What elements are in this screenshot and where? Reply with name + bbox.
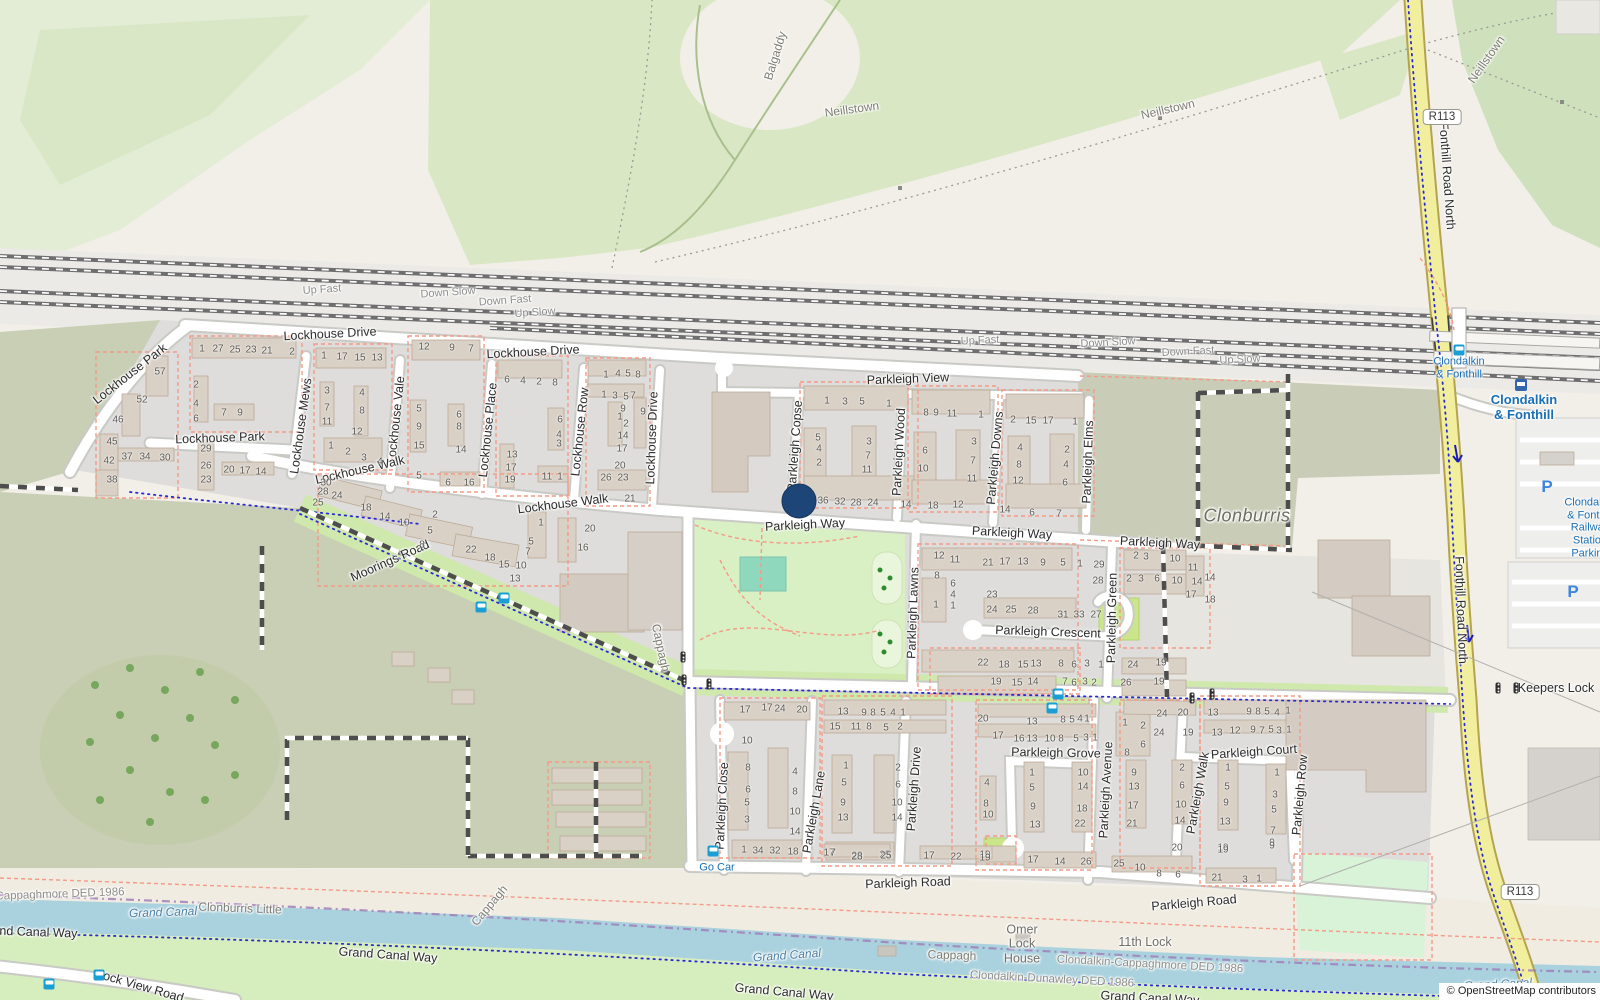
map-marker[interactable] <box>782 484 817 519</box>
map-canvas[interactable]: Lockhouse ParkLockhouse DriveLockhouse D… <box>0 0 1600 1000</box>
attribution[interactable]: © OpenStreetMap contributors <box>1439 983 1600 1000</box>
